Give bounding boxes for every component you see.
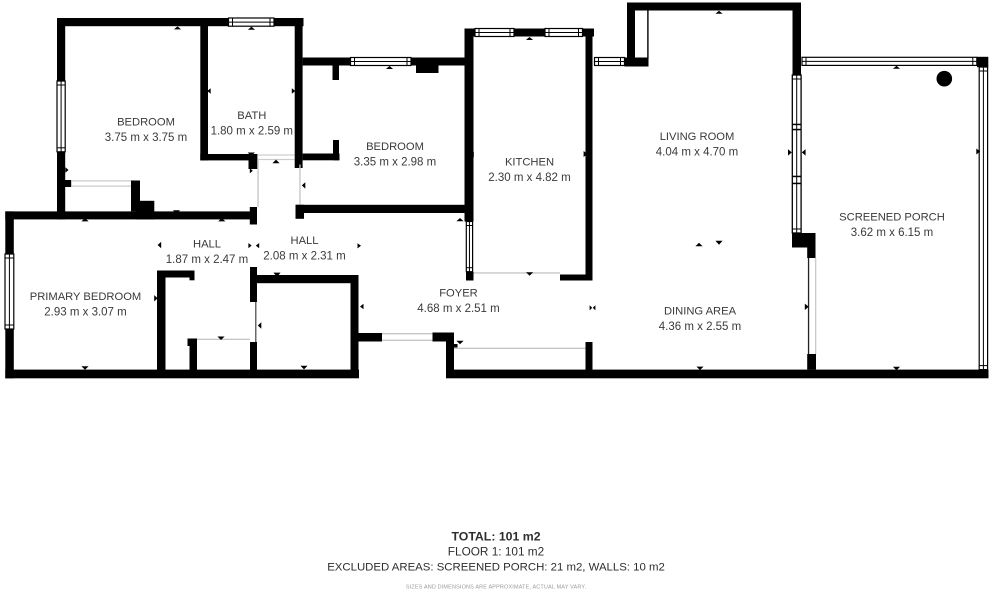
svg-text:2.93 m x 3.07 m: 2.93 m x 3.07 m [44,307,126,319]
svg-text:3.35 m x 2.98 m: 3.35 m x 2.98 m [354,157,436,169]
svg-text:SIZES AND DIMENSIONS ARE APPRO: SIZES AND DIMENSIONS ARE APPROXIMATE, AC… [406,585,587,591]
svg-text:FOYER: FOYER [439,288,478,300]
svg-text:HALL: HALL [291,235,319,247]
svg-text:BEDROOM: BEDROOM [117,117,175,129]
svg-text:SCREENED PORCH: SCREENED PORCH [839,212,945,224]
svg-text:1.80 m x 2.59 m: 1.80 m x 2.59 m [211,126,293,138]
svg-text:KITCHEN: KITCHEN [505,157,554,169]
svg-text:3.62 m x 6.15 m: 3.62 m x 6.15 m [851,227,933,239]
svg-text:HALL: HALL [193,239,221,251]
svg-text:BATH: BATH [237,110,266,122]
svg-text:4.68 m x 2.51 m: 4.68 m x 2.51 m [417,303,499,315]
svg-text:DINING AREA: DINING AREA [664,306,737,318]
svg-text:PRIMARY BEDROOM: PRIMARY BEDROOM [30,291,141,303]
svg-text:BEDROOM: BEDROOM [366,141,424,153]
svg-text:TOTAL: 101 m2: TOTAL: 101 m2 [451,530,540,544]
svg-text:2.30 m x 4.82 m: 2.30 m x 4.82 m [488,172,570,184]
svg-text:4.04 m x 4.70 m: 4.04 m x 4.70 m [656,147,738,159]
svg-text:FLOOR 1: 101 m2: FLOOR 1: 101 m2 [448,545,544,559]
svg-text:4.36 m x 2.55 m: 4.36 m x 2.55 m [659,321,741,333]
svg-text:EXCLUDED AREAS: SCREENED PORCH: EXCLUDED AREAS: SCREENED PORCH: 21 m2, W… [327,562,665,574]
svg-text:2.08 m x 2.31 m: 2.08 m x 2.31 m [263,250,345,262]
svg-text:LIVING ROOM: LIVING ROOM [660,131,735,143]
svg-text:3.75 m x 3.75 m: 3.75 m x 3.75 m [105,132,187,144]
svg-text:1.87 m x 2.47 m: 1.87 m x 2.47 m [166,254,248,266]
